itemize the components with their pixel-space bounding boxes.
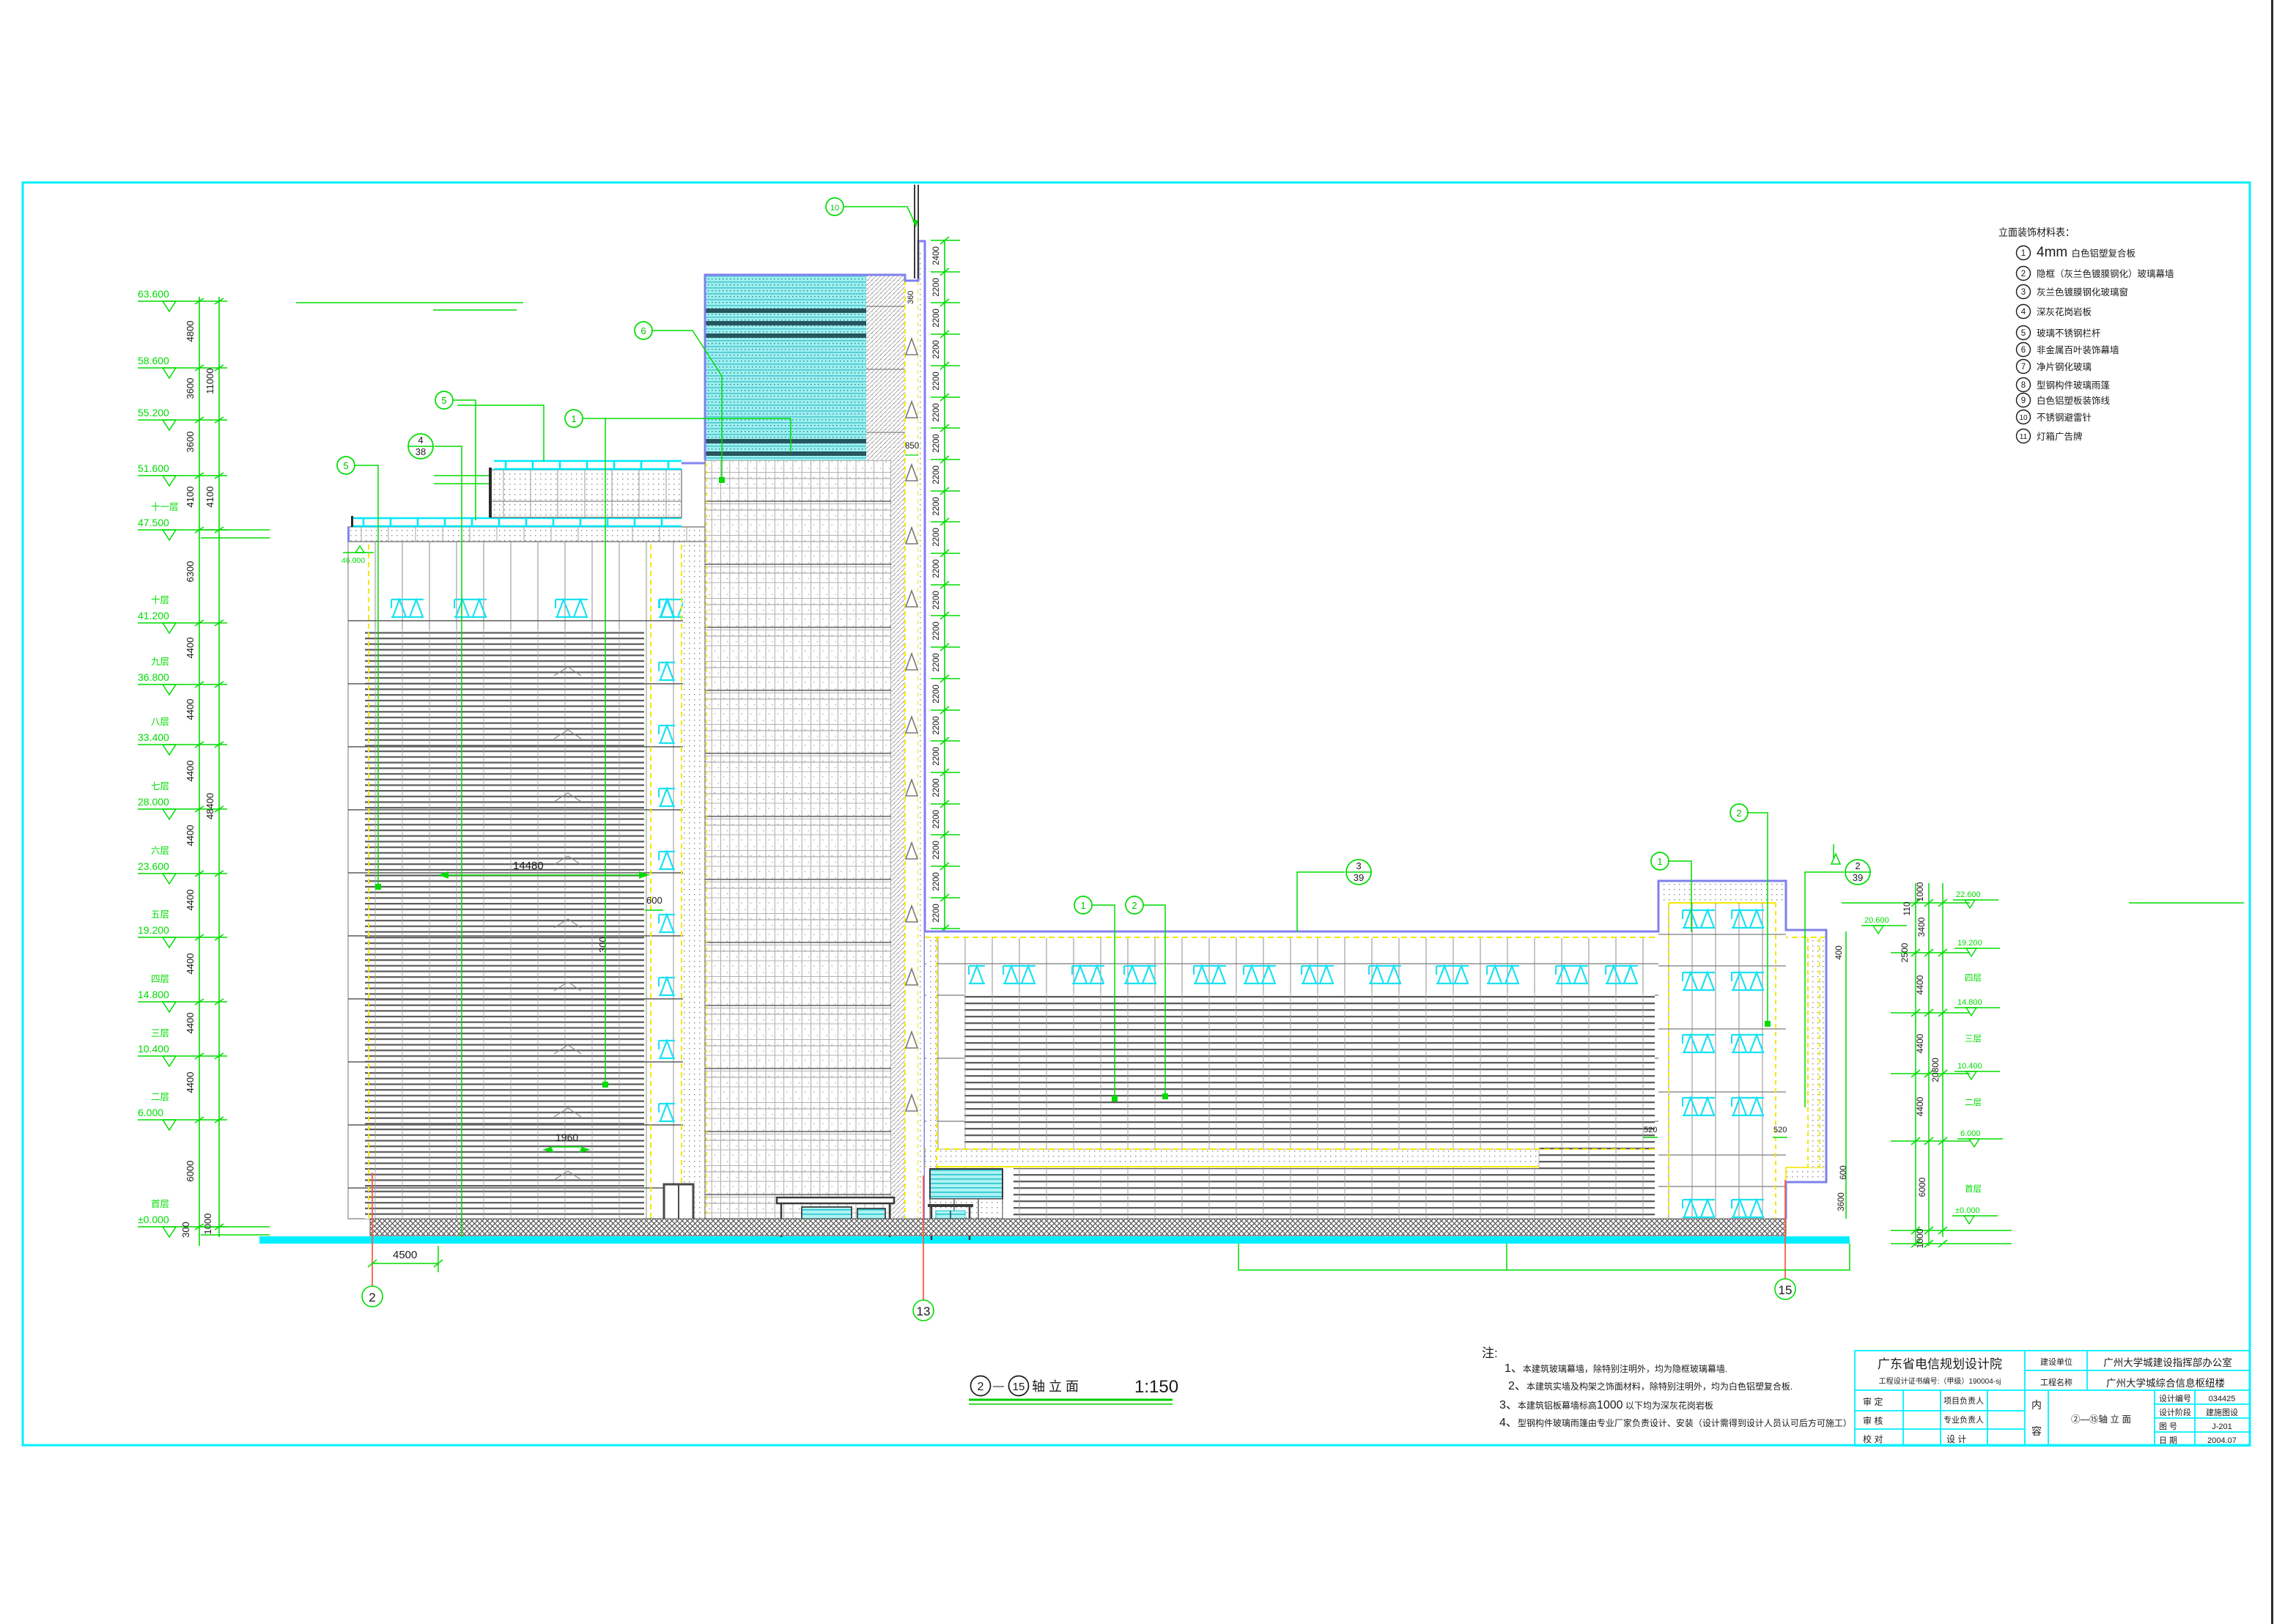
svg-text:2: 2: [369, 1291, 375, 1304]
svg-text:520: 520: [1773, 1126, 1787, 1134]
svg-text:9: 9: [2021, 396, 2026, 405]
svg-text:玻璃不锈钢栏杆: 玻璃不锈钢栏杆: [2037, 328, 2101, 339]
svg-text:300: 300: [597, 937, 608, 953]
svg-text:6: 6: [641, 325, 646, 336]
svg-text:850: 850: [905, 442, 919, 451]
svg-text:2: 2: [2021, 270, 2026, 278]
svg-text:②—⑮轴 立 面: ②—⑮轴 立 面: [2071, 1414, 2131, 1425]
svg-text:七层: 七层: [151, 781, 169, 791]
svg-text:日 期: 日 期: [2159, 1436, 2177, 1445]
svg-text:6.000: 6.000: [1960, 1129, 1981, 1138]
svg-text:立面装饰材料表：: 立面装饰材料表：: [1998, 226, 2075, 238]
svg-text:内: 内: [2031, 1399, 2042, 1411]
svg-text:2200: 2200: [932, 716, 941, 735]
svg-text:110: 110: [1902, 901, 1912, 915]
svg-text:4、型钢构件玻璃雨篷由专业厂家负责设计、安装（设计需得到设计: 4、型钢构件玻璃雨篷由专业厂家负责设计、安装（设计需得到设计人员认可后方可施工）: [1499, 1417, 1852, 1429]
svg-text:55.200: 55.200: [138, 407, 169, 418]
svg-text:广州大学城综合信息枢纽楼: 广州大学城综合信息枢纽楼: [2106, 1377, 2225, 1389]
svg-text:2200: 2200: [932, 653, 941, 672]
svg-text:5: 5: [441, 395, 446, 406]
svg-text:23.600: 23.600: [138, 860, 169, 872]
svg-text:灯箱广告牌: 灯箱广告牌: [2037, 431, 2083, 442]
svg-text:广州大学城建设指挥部办公室: 广州大学城建设指挥部办公室: [2103, 1357, 2232, 1368]
svg-text:2200: 2200: [932, 621, 941, 641]
svg-text:3、本建筑铝板幕墙标高1000 以下均为深灰花岗岩板: 3、本建筑铝板幕墙标高1000 以下均为深灰花岗岩板: [1499, 1399, 1713, 1411]
svg-text:广东省电信规划设计院: 广东省电信规划设计院: [1878, 1357, 2002, 1371]
svg-text:设计阶段: 设计阶段: [2159, 1407, 2191, 1417]
svg-text:2004.07: 2004.07: [2207, 1436, 2237, 1445]
svg-text:建施图设: 建施图设: [2206, 1407, 2238, 1417]
svg-text:300: 300: [180, 1222, 191, 1238]
svg-text:三层: 三层: [151, 1028, 169, 1038]
svg-text:八层: 八层: [151, 717, 169, 727]
svg-text:4400: 4400: [185, 638, 196, 659]
svg-text:4400: 4400: [185, 953, 196, 975]
svg-text:白色铝塑板装饰线: 白色铝塑板装饰线: [2037, 395, 2111, 406]
svg-text:39: 39: [1853, 872, 1863, 883]
svg-text:4400: 4400: [185, 1072, 196, 1093]
svg-text:±0.000: ±0.000: [1955, 1206, 1980, 1215]
svg-text:8: 8: [2021, 381, 2026, 390]
svg-text:九层: 九层: [151, 657, 169, 667]
svg-text:4100: 4100: [204, 487, 215, 508]
svg-text:3: 3: [2021, 288, 2026, 297]
svg-text:36.800: 36.800: [138, 671, 169, 683]
svg-text:三层: 三层: [1965, 1034, 1982, 1044]
svg-text:2200: 2200: [932, 591, 941, 610]
svg-text:19.200: 19.200: [1957, 939, 1982, 948]
svg-text:33.400: 33.400: [138, 731, 169, 743]
svg-text:审 定: 审 定: [1863, 1396, 1883, 1407]
svg-text:1000: 1000: [1915, 882, 1925, 901]
svg-text:十层: 十层: [151, 595, 169, 605]
svg-text:注:: 注:: [1482, 1346, 1498, 1360]
svg-text:4800: 4800: [185, 321, 196, 342]
svg-text:4400: 4400: [1915, 1033, 1925, 1053]
svg-text:1: 1: [2021, 249, 2026, 258]
svg-text:十一层: 十一层: [151, 502, 179, 512]
svg-text:4: 4: [418, 435, 423, 446]
svg-text:4400: 4400: [185, 1013, 196, 1034]
svg-text:审 核: 审 核: [1863, 1415, 1883, 1426]
svg-text:1、本建筑玻璃幕墙，除特别注明外，均为隐框玻璃幕墙.: 1、本建筑玻璃幕墙，除特别注明外，均为隐框玻璃幕墙.: [1505, 1362, 1727, 1375]
svg-text:034425: 034425: [2209, 1395, 2236, 1403]
svg-text:2、本建筑实墙及构架之饰面材料，除特别注明外，均为白色铝塑复: 2、本建筑实墙及构架之饰面材料，除特别注明外，均为白色铝塑复合板.: [1508, 1380, 1793, 1392]
svg-text:3400: 3400: [1916, 917, 1927, 937]
svg-text:48400: 48400: [204, 793, 215, 819]
svg-text:14.800: 14.800: [138, 989, 169, 1000]
svg-text:19.200: 19.200: [138, 924, 169, 936]
svg-text:600: 600: [1839, 1165, 1848, 1179]
svg-text:灰兰色镀膜钢化玻璃窗: 灰兰色镀膜钢化玻璃窗: [2037, 287, 2128, 298]
svg-text:设 计: 设 计: [1946, 1434, 1966, 1444]
svg-text:4500: 4500: [393, 1249, 417, 1261]
svg-text:6000: 6000: [185, 1161, 196, 1182]
svg-text:四层: 四层: [151, 974, 169, 984]
svg-text:专业负责人: 专业负责人: [1943, 1414, 1984, 1425]
svg-text:六层: 六层: [151, 846, 169, 856]
svg-text:2200: 2200: [932, 403, 941, 422]
svg-text:工程名称: 工程名称: [2040, 1377, 2072, 1387]
svg-text:6: 6: [2021, 346, 2026, 355]
svg-text:图 号: 图 号: [2159, 1422, 2177, 1431]
svg-text:设计编号: 设计编号: [2159, 1393, 2191, 1403]
svg-text:4400: 4400: [185, 699, 196, 720]
svg-text:二层: 二层: [151, 1092, 169, 1102]
svg-text:1000: 1000: [202, 1214, 213, 1235]
svg-text:20800: 20800: [1930, 1058, 1941, 1082]
svg-text:2200: 2200: [932, 559, 941, 578]
svg-text:2: 2: [1736, 808, 1741, 819]
svg-text:4400: 4400: [1915, 975, 1925, 994]
svg-text:28.000: 28.000: [138, 796, 169, 808]
svg-text:2200: 2200: [932, 465, 941, 484]
svg-text:J-201: J-201: [2212, 1422, 2232, 1431]
svg-text:58.600: 58.600: [138, 355, 169, 366]
svg-text:2400: 2400: [932, 246, 941, 265]
svg-text:深灰花岗岩板: 深灰花岗岩板: [2037, 306, 2092, 317]
svg-text:11: 11: [2020, 433, 2028, 441]
svg-text:工程设计证书编号:（甲级）190004-sj: 工程设计证书编号:（甲级）190004-sj: [1879, 1376, 2001, 1386]
svg-text:2: 2: [1132, 900, 1137, 911]
svg-text:520: 520: [1644, 1126, 1657, 1134]
svg-text:3: 3: [1356, 860, 1361, 871]
svg-text:46.000: 46.000: [342, 556, 365, 565]
svg-text:首层: 首层: [1965, 1184, 1982, 1194]
svg-text:41.200: 41.200: [138, 610, 169, 621]
svg-text:1:150: 1:150: [1134, 1377, 1178, 1397]
svg-text:400: 400: [1835, 945, 1844, 959]
svg-text:隐框（灰兰色镀膜钢化）玻璃幕墙: 隐框（灰兰色镀膜钢化）玻璃幕墙: [2037, 268, 2174, 279]
svg-text:4400: 4400: [185, 761, 196, 782]
svg-text:校 对: 校 对: [1863, 1433, 1883, 1444]
svg-text:4: 4: [2021, 308, 2026, 317]
svg-text:38: 38: [416, 446, 426, 457]
svg-text:4100: 4100: [185, 487, 196, 508]
svg-text:20.600: 20.600: [1864, 916, 1889, 925]
svg-text:47.500: 47.500: [138, 517, 169, 528]
svg-text:2200: 2200: [932, 872, 941, 891]
svg-text:3600: 3600: [1837, 1192, 1846, 1211]
svg-text:4400: 4400: [185, 825, 196, 846]
svg-text:6300: 6300: [185, 561, 196, 583]
svg-text:600: 600: [646, 895, 662, 906]
svg-text:2200: 2200: [932, 497, 941, 516]
svg-text:6.000: 6.000: [138, 1107, 163, 1118]
svg-text:4400: 4400: [1915, 1096, 1925, 1116]
svg-text:15: 15: [1779, 1283, 1793, 1297]
svg-text:四层: 四层: [1965, 973, 1982, 983]
svg-text:2200: 2200: [932, 372, 941, 391]
svg-text:10.400: 10.400: [138, 1043, 169, 1055]
svg-text:4400: 4400: [185, 890, 196, 911]
svg-text:2200: 2200: [932, 841, 941, 860]
svg-text:2200: 2200: [932, 528, 941, 547]
svg-text:1: 1: [571, 413, 576, 424]
svg-text:1960: 1960: [555, 1132, 578, 1143]
svg-text:10: 10: [2019, 414, 2028, 422]
svg-text:轴 立 面: 轴 立 面: [1032, 1379, 1079, 1394]
svg-text:五层: 五层: [151, 909, 169, 920]
svg-text:首层: 首层: [151, 1199, 169, 1209]
svg-text:63.600: 63.600: [138, 288, 169, 300]
svg-text:5: 5: [2021, 329, 2026, 338]
svg-text:10: 10: [830, 204, 839, 213]
svg-text:14.800: 14.800: [1957, 998, 1982, 1007]
svg-text:项目负责人: 项目负责人: [1943, 1395, 1984, 1406]
svg-text:净片钢化玻璃: 净片钢化玻璃: [2037, 362, 2092, 372]
svg-text:2500: 2500: [1900, 942, 1910, 962]
svg-text:2200: 2200: [932, 309, 941, 328]
svg-text:二层: 二层: [1965, 1098, 1982, 1107]
svg-text:10.400: 10.400: [1957, 1062, 1982, 1071]
svg-text:2200: 2200: [932, 434, 941, 453]
svg-text:—: —: [993, 1380, 1004, 1392]
svg-text:2: 2: [978, 1381, 984, 1393]
svg-text:2: 2: [1855, 860, 1860, 871]
svg-text:2200: 2200: [932, 278, 941, 297]
svg-text:5: 5: [343, 460, 348, 471]
svg-text:360: 360: [907, 291, 915, 304]
svg-text:14480: 14480: [513, 860, 544, 872]
svg-text:7: 7: [2021, 363, 2026, 372]
svg-text:11000: 11000: [204, 368, 215, 394]
svg-text:3600: 3600: [185, 432, 196, 453]
svg-text:1: 1: [1657, 856, 1662, 867]
svg-text:51.600: 51.600: [138, 462, 169, 474]
svg-text:建设单位: 建设单位: [2040, 1357, 2072, 1367]
svg-text:1: 1: [1080, 900, 1085, 911]
svg-text:1000: 1000: [1915, 1228, 1925, 1248]
svg-text:2200: 2200: [932, 747, 941, 766]
svg-text:2200: 2200: [932, 904, 941, 923]
svg-text:22.600: 22.600: [1956, 890, 1981, 899]
svg-text:2200: 2200: [932, 810, 941, 829]
svg-text:型钢构件玻璃雨篷: 型钢构件玻璃雨篷: [2037, 380, 2111, 391]
svg-text:2200: 2200: [932, 778, 941, 797]
svg-text:3600: 3600: [185, 378, 196, 399]
svg-text:非金属百叶装饰幕墙: 非金属百叶装饰幕墙: [2037, 344, 2119, 355]
svg-text:15: 15: [1013, 1381, 1025, 1393]
svg-text:6000: 6000: [1917, 1177, 1927, 1197]
svg-text:容: 容: [2031, 1425, 2042, 1437]
svg-text:13: 13: [917, 1304, 931, 1318]
svg-text:39: 39: [1354, 872, 1364, 883]
svg-text:2200: 2200: [932, 684, 941, 704]
svg-text:±0.000: ±0.000: [138, 1214, 169, 1225]
svg-text:2200: 2200: [932, 340, 941, 359]
svg-text:不锈钢避雷针: 不锈钢避雷针: [2037, 412, 2092, 423]
